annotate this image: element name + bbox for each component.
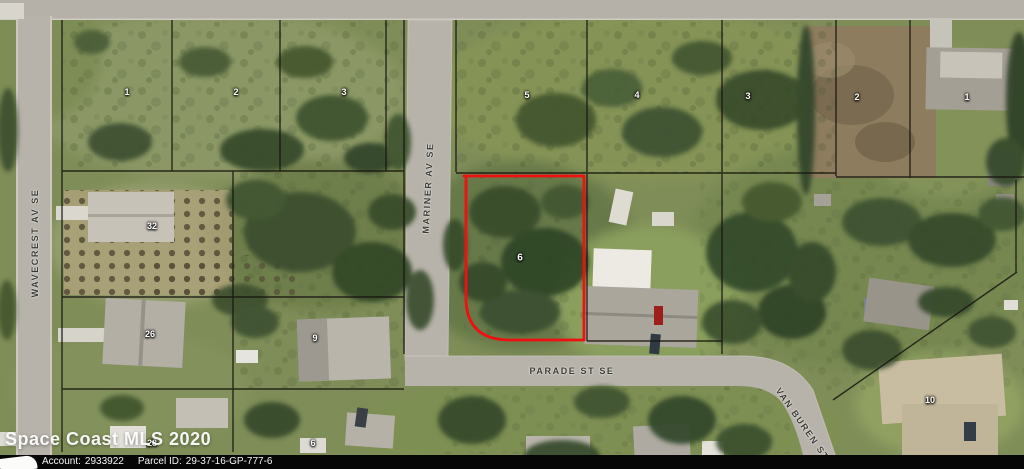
mls-watermark: Space Coast MLS 2020	[5, 429, 211, 450]
road-top	[0, 0, 1024, 20]
parcel-id-label: Parcel ID:	[138, 456, 182, 467]
provider-bar: Account:2933922Parcel ID:29-37-16-GP-777…	[0, 455, 1024, 469]
road-wavecrest	[16, 16, 52, 455]
account-label: Account:	[42, 456, 81, 467]
parcel-info-text: Account:2933922Parcel ID:29-37-16-GP-777…	[42, 455, 272, 469]
aerial-parcel-map[interactable]: WAVECREST AV SEMARINER AV SEPARADE ST SE…	[0, 0, 1024, 469]
account-value: 2933922	[85, 456, 124, 467]
parcel-id-value: 29-37-16-GP-777-6	[186, 456, 273, 467]
mls-logo-swoosh	[0, 455, 38, 469]
aerial-photo-layer	[0, 0, 1024, 469]
